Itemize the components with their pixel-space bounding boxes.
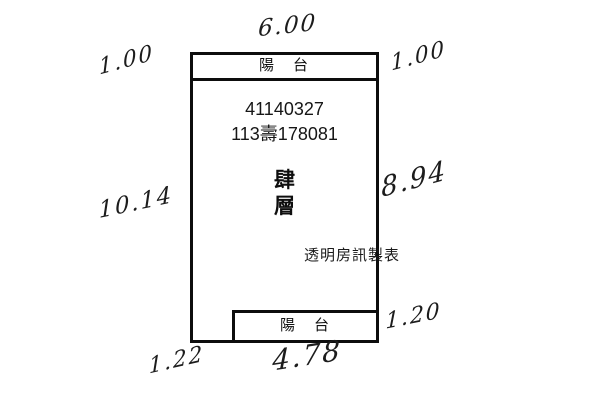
top-balcony-box: 陽 台 [193,55,376,81]
floor-char-1: 肆 [193,167,376,193]
registration-number: 41140327 [193,97,376,122]
measurement-bottom-right-balcony-depth: 1.20 [385,300,441,333]
watermark-text: 透明房訊製表 [304,244,400,265]
measurement-bottom-left-offset: 1.22 [149,343,205,378]
top-balcony-label: 陽 台 [259,59,310,74]
measurement-top-width: 6.00 [257,12,318,41]
floor-label: 肆 層 [193,167,376,219]
bottom-balcony-label: 陽 台 [280,319,331,334]
measurement-top-right-balcony-depth: 1.00 [390,38,446,75]
bottom-balcony-box: 陽 台 [232,310,376,340]
document-numbers: 41140327 113壽178081 [193,97,376,147]
measurement-bottom-balcony-width: 4.78 [272,336,342,375]
case-number: 113壽178081 [193,122,376,147]
measurement-left-total-depth: 10.14 [98,184,173,223]
measurement-top-left-balcony-depth: 1.00 [98,42,154,79]
building-outline: 陽 台 41140327 113壽178081 肆 層 陽 台 [190,52,379,343]
measurement-right-main-depth: 8.94 [380,157,447,202]
floor-plan-sheet: 陽 台 41140327 113壽178081 肆 層 陽 台 透明房訊製表 6… [0,0,602,400]
floor-char-2: 層 [193,193,376,219]
